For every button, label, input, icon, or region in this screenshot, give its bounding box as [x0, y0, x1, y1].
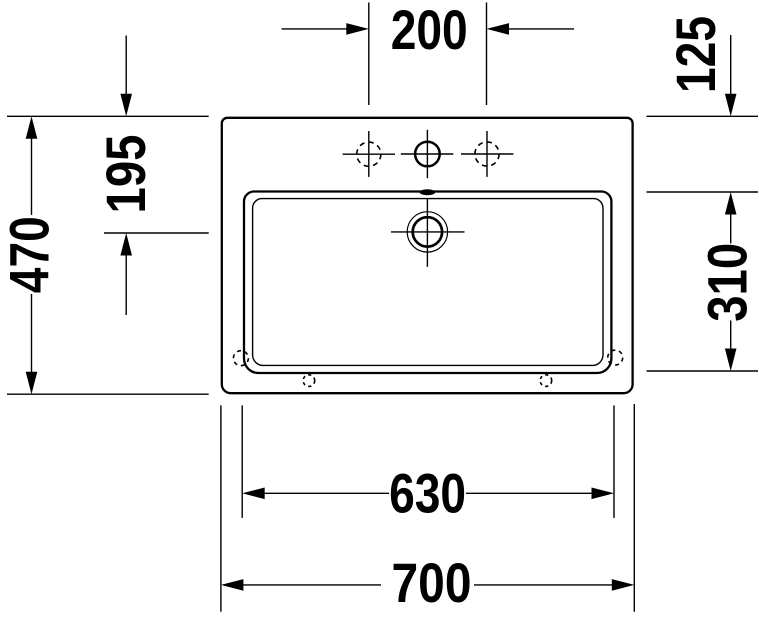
- svg-text:470: 470: [0, 216, 60, 293]
- svg-text:630: 630: [389, 462, 466, 524]
- svg-text:700: 700: [392, 552, 472, 614]
- svg-text:310: 310: [697, 243, 759, 322]
- svg-text:195: 195: [95, 135, 157, 214]
- svg-text:200: 200: [391, 0, 468, 61]
- svg-text:125: 125: [665, 16, 727, 93]
